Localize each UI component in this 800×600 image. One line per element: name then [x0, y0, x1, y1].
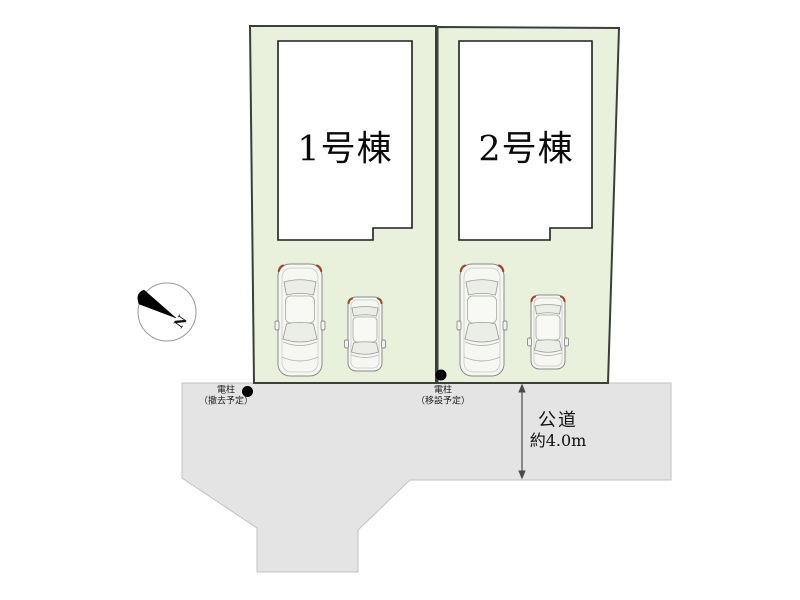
building-1-outline — [278, 41, 412, 240]
building-2-outline — [459, 41, 592, 240]
car-sedan-lot2 — [457, 264, 507, 376]
car-compact-lot2 — [528, 295, 569, 369]
site-plan: N 1号棟 2号棟 電柱 （撤去予定） 電柱 （移設予定） 公道 約4.0m — [0, 0, 800, 600]
road-area — [182, 383, 671, 572]
car-sedan-lot1 — [275, 264, 325, 376]
utility-pole-dot-1 — [242, 386, 253, 397]
car-compact-lot1 — [345, 297, 386, 371]
site-plan-canvas: N — [0, 0, 800, 600]
utility-pole-dot-2 — [436, 370, 447, 381]
compass: N — [138, 283, 196, 341]
